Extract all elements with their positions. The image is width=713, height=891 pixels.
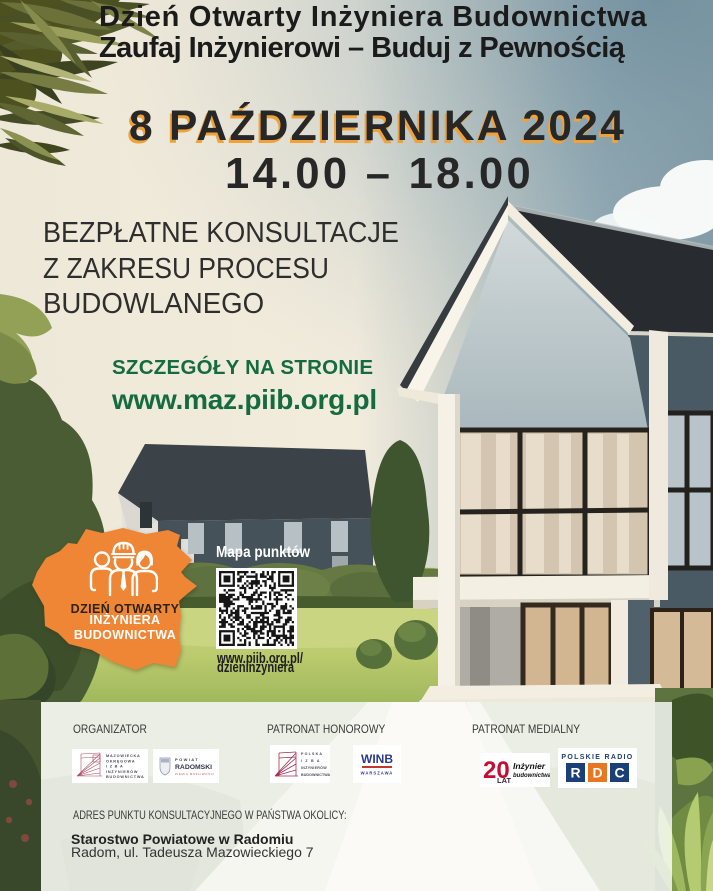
- svg-text:INŻYNIERÓW: INŻYNIERÓW: [301, 765, 327, 770]
- svg-text:INŻYNIERÓW: INŻYNIERÓW: [106, 769, 138, 774]
- svg-text:POWIAT: POWIAT: [175, 757, 199, 762]
- svg-text:Inżynier: Inżynier: [513, 761, 546, 771]
- svg-text:WINB: WINB: [361, 752, 393, 766]
- svg-text:ZIEMIA MOŻLIWOŚCI: ZIEMIA MOŻLIWOŚCI: [175, 771, 215, 776]
- svg-text:OKRĘGOWA: OKRĘGOWA: [106, 759, 135, 763]
- svg-text:R: R: [570, 765, 580, 781]
- svg-text:RADOMSKI: RADOMSKI: [175, 764, 212, 771]
- svg-text:POLSKA: POLSKA: [301, 752, 323, 756]
- svg-text:I Z B A: I Z B A: [106, 765, 123, 769]
- svg-text:POLSKIE RADIO: POLSKIE RADIO: [561, 754, 633, 761]
- svg-text:BUDOWNICTWA: BUDOWNICTWA: [301, 773, 330, 777]
- svg-text:I Z B A: I Z B A: [301, 759, 321, 763]
- svg-text:LAT: LAT: [497, 776, 511, 785]
- svg-text:D: D: [592, 765, 602, 781]
- svg-text:MAZOWIECKA: MAZOWIECKA: [106, 754, 141, 758]
- svg-text:BUDOWNICTWA: BUDOWNICTWA: [106, 775, 145, 779]
- svg-text:WARSZAWA: WARSZAWA: [361, 771, 394, 776]
- svg-text:budownictwa: budownictwa: [513, 773, 550, 779]
- svg-text:C: C: [614, 765, 624, 781]
